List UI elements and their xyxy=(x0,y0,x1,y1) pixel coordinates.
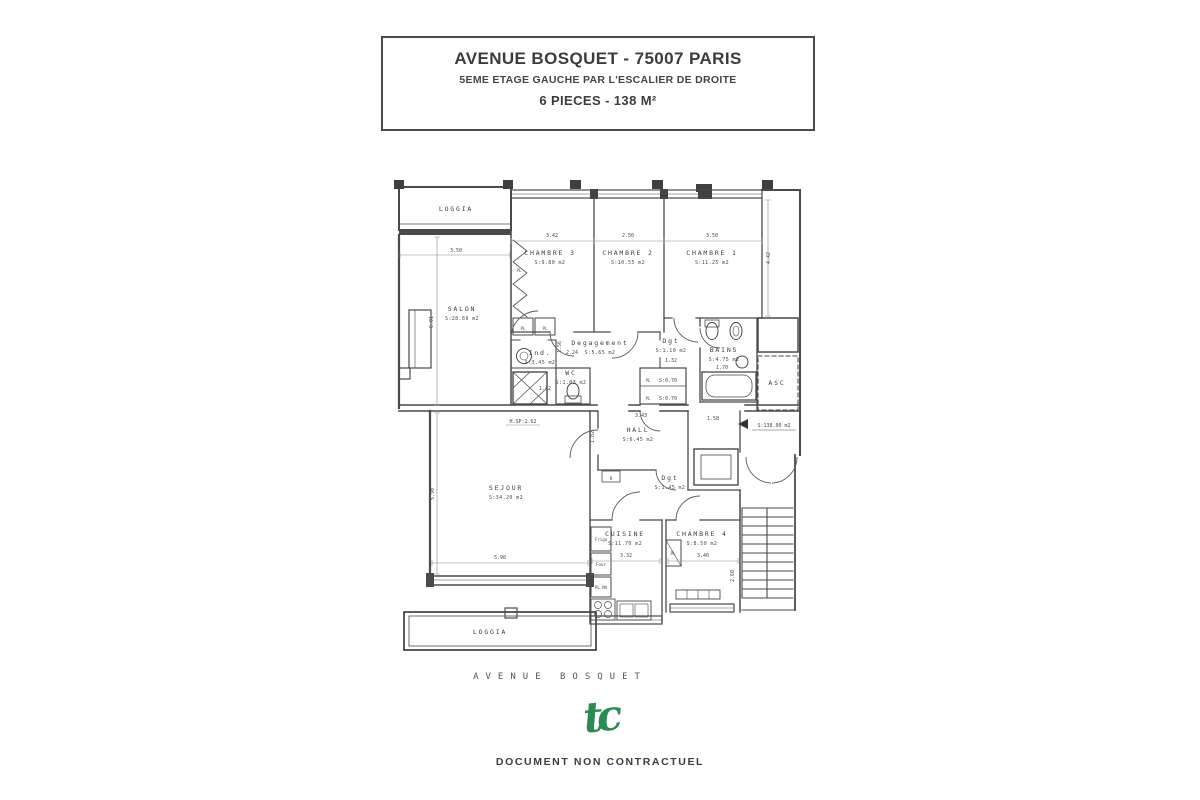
dim-21: 3.40 xyxy=(697,553,709,559)
room-area-chambre-1: S:11.25 m2 xyxy=(695,260,729,266)
misc-label-1: PL xyxy=(520,326,526,331)
room-label-loggia-top: LOGGIA xyxy=(439,205,473,213)
misc-label-0: PL xyxy=(516,268,522,273)
dim-0: 3.50 xyxy=(450,248,462,254)
dim-14: 1.58 xyxy=(707,416,719,422)
room-area-chambre-2: S:10.55 m2 xyxy=(611,260,645,266)
room-area-ind: S:3.45 m2 xyxy=(525,360,556,366)
room-label-chambre-4: CHAMBRE 4 xyxy=(676,530,727,538)
dim-15: 1.82 xyxy=(590,431,596,443)
dim-7: 2.24 xyxy=(566,350,578,356)
room-label-loggia-bottom: LOGGIA xyxy=(473,628,507,636)
misc-label-6: R xyxy=(610,476,613,481)
room-area-degagement: S:5.65 m2 xyxy=(585,350,616,356)
misc-label-9: PL.MA xyxy=(595,585,608,590)
dim-6: 1.56 xyxy=(557,341,563,353)
dim-20: 3.32 xyxy=(620,553,632,559)
dim-2: 2.50 xyxy=(622,233,634,239)
dim-4: 6.01 xyxy=(429,316,435,328)
dim-13: 3.43 xyxy=(635,413,647,419)
dim-12: 1.70 xyxy=(716,365,728,371)
dim-22: 2.60 xyxy=(730,570,736,582)
dim-3: 3.50 xyxy=(706,233,718,239)
room-label-chambre-1: CHAMBRE 1 xyxy=(686,249,737,257)
dim-11: S:0.70 xyxy=(659,396,677,402)
room-label-cuisine: CUISINE xyxy=(605,530,645,538)
plan-address: AVENUE BOSQUET - 75007 PARIS xyxy=(383,49,813,69)
room-area-chambre-3: S:9.80 m2 xyxy=(535,260,566,266)
misc-label-2: PL xyxy=(542,326,548,331)
room-label-ind: Ind. xyxy=(529,349,552,357)
misc-label-8: Four xyxy=(596,562,607,567)
room-label-bains: BAINS xyxy=(710,346,739,354)
room-area-hall: S:6.45 m2 xyxy=(623,437,654,443)
misc-label-7: Frigo xyxy=(595,537,608,542)
dim-17: S:138.00 m2 xyxy=(757,423,790,429)
dim-5: 4.42 xyxy=(766,252,772,264)
misc-label-3: PL xyxy=(645,378,651,383)
dim-10: S:0.70 xyxy=(659,378,677,384)
plan-floor-info: 5EME ETAGE GAUCHE PAR L'ESCALIER DE DROI… xyxy=(383,74,813,86)
room-label-sejour: SEJOUR xyxy=(489,484,523,492)
room-label-hall: HALL xyxy=(627,426,650,434)
room-label-chambre-3: CHAMBRE 3 xyxy=(524,249,575,257)
dim-19: 5.90 xyxy=(430,488,436,500)
room-label-degagement: Degagement xyxy=(571,339,628,347)
room-label-salon: SALON xyxy=(448,305,477,313)
agency-logo: tc xyxy=(538,686,663,752)
disclaimer: DOCUMENT NON CONTRACTUEL xyxy=(400,756,800,768)
dim-16: H.SP:2.62 xyxy=(509,419,536,425)
room-label-asc: ASC xyxy=(768,379,785,387)
room-label-dgt-entree: Dgt xyxy=(661,474,678,482)
scanned-floor-plan-page: AVENUE BOSQUET - 75007 PARIS 5EME ETAGE … xyxy=(0,0,1200,800)
room-area-dgt-bains: S:1.10 m2 xyxy=(656,348,687,354)
plan-size-info: 6 PIECES - 138 M² xyxy=(383,93,813,108)
room-area-bains: S:4.75 m2 xyxy=(709,357,740,363)
room-area-dgt-entree: S:1.45 m2 xyxy=(655,485,686,491)
dim-8: 1.42 xyxy=(539,386,551,392)
room-label-chambre-2: CHAMBRE 2 xyxy=(602,249,653,257)
room-label-wc: WC xyxy=(565,369,576,377)
title-block: AVENUE BOSQUET - 75007 PARIS 5EME ETAGE … xyxy=(381,36,815,131)
dim-1: 3.42 xyxy=(546,233,558,239)
plan-labels: LOGGIASALONS:28.69 m2CHAMBRE 3S:9.80 m2C… xyxy=(429,205,791,636)
room-area-wc: S:1.03 m2 xyxy=(556,380,587,386)
room-area-salon: S:28.69 m2 xyxy=(445,316,479,322)
room-label-dgt-bains: Dgt xyxy=(662,337,679,345)
street-label: AVENUE BOSQUET xyxy=(400,672,720,682)
dim-18: 5.90 xyxy=(494,555,506,561)
misc-label-4: PL xyxy=(645,396,651,401)
room-area-chambre-4: S:8.50 m2 xyxy=(687,541,718,547)
floor-plan: LOGGIASALONS:28.69 m2CHAMBRE 3S:9.80 m2C… xyxy=(385,175,815,680)
room-area-sejour: S:34.20 m2 xyxy=(489,495,523,501)
room-area-cuisine: S:11.70 m2 xyxy=(608,541,642,547)
misc-label-5: PL xyxy=(670,551,676,556)
dim-9: 1.32 xyxy=(665,358,677,364)
